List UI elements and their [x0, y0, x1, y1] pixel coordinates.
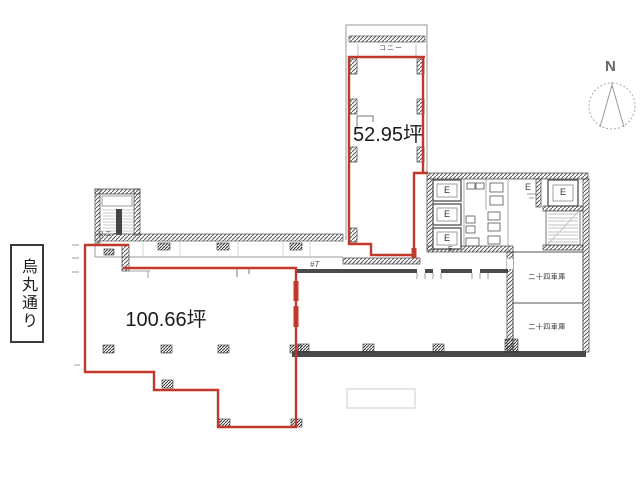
elevator-label-right: E: [556, 187, 570, 197]
toilet-block: [464, 179, 508, 252]
compass-north-label: N: [605, 58, 616, 75]
right-core: [527, 179, 583, 250]
parking-rooms: [507, 252, 583, 352]
street-label: 烏丸通り: [15, 258, 39, 330]
balcony-label-stairwell: コニー: [97, 229, 121, 239]
area-label-lower: 100.66坪: [114, 303, 218, 332]
eps-label: E: [525, 182, 531, 192]
dimension-ticks: [72, 245, 80, 365]
parking-room-label-lower: 二十四車庫: [515, 322, 579, 332]
elevator-label-1: E: [440, 185, 454, 195]
elevator-label-small: E: [448, 246, 453, 253]
parking-room-label-upper: 二十四車庫: [515, 272, 579, 282]
elevator-label-3: E: [440, 233, 454, 243]
door-note: #T: [310, 260, 319, 269]
area-label-upper: 52.95坪: [340, 118, 436, 147]
floorplan-drawing: [0, 0, 640, 480]
dimension-box: [347, 389, 415, 408]
elevator-label-2: E: [440, 209, 454, 219]
lease-boundary-upper: [349, 57, 428, 255]
balcony-label-upper-wing: コニー: [379, 43, 403, 53]
street-label-box: 烏丸通り: [10, 244, 44, 343]
pillar-marks: [103, 249, 302, 427]
compass: [589, 82, 635, 129]
floorplan-page: 烏丸通り 52.95坪 100.66坪 コニー コニー E E E E E E …: [0, 0, 640, 480]
